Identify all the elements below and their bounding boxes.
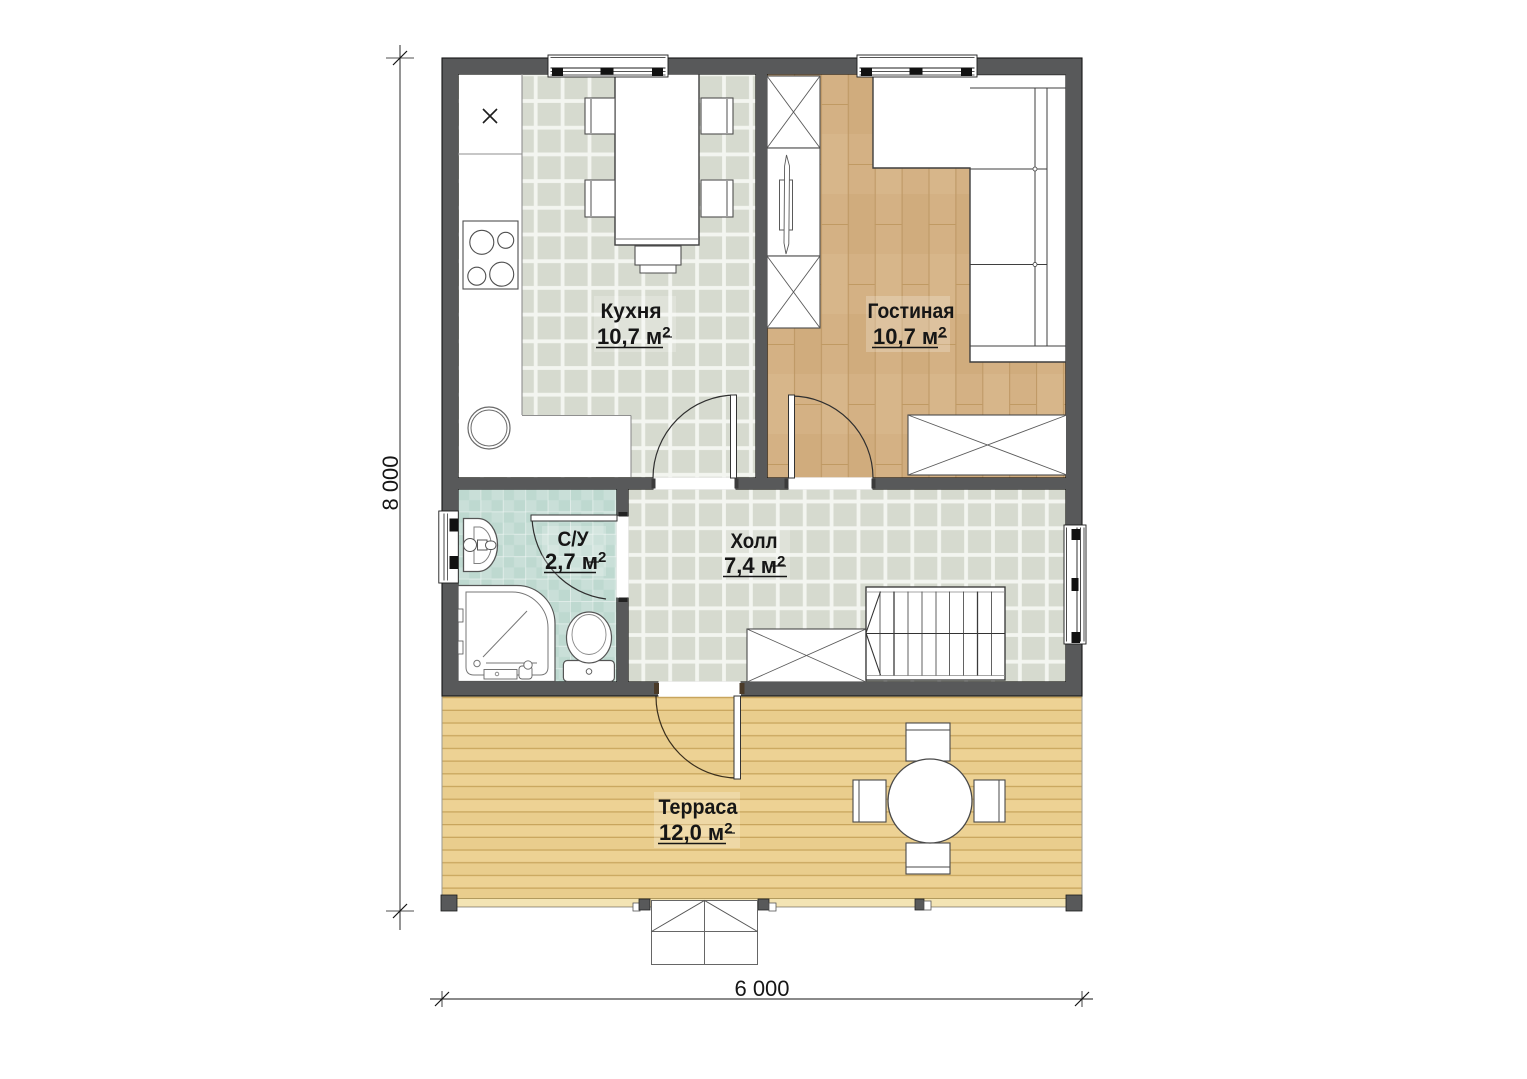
svg-text:Кухня: Кухня: [601, 300, 662, 323]
svg-text:Терраса: Терраса: [659, 796, 738, 819]
svg-text:С/У: С/У: [558, 528, 590, 551]
svg-text:Гостиная: Гостиная: [868, 300, 955, 323]
svg-text:12,0 м2: 12,0 м2: [659, 820, 733, 845]
svg-text:10,7 м2: 10,7 м2: [873, 324, 947, 349]
svg-text:Холл: Холл: [731, 530, 778, 553]
svg-text:10,7 м2: 10,7 м2: [597, 324, 671, 349]
svg-text:8 000: 8 000: [378, 455, 403, 510]
svg-text:6 000: 6 000: [734, 976, 789, 1001]
